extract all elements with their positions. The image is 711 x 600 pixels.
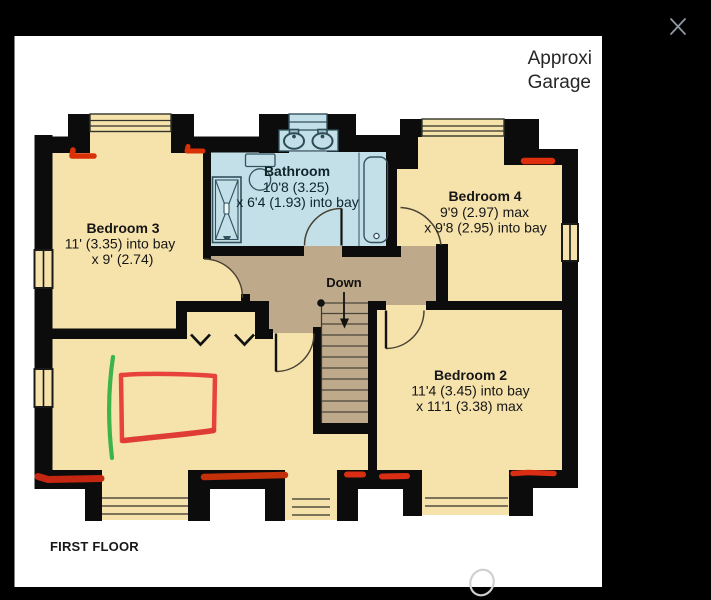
svg-text:Approxi: Approxi [528,48,592,69]
svg-text:x 11'1 (3.38) max: x 11'1 (3.38) max [416,398,523,414]
svg-text:11'4 (3.45) into bay: 11'4 (3.45) into bay [411,383,529,399]
svg-text:Down: Down [326,275,361,290]
svg-text:Garage: Garage [528,72,591,93]
svg-text:Bedroom 4: Bedroom 4 [448,188,521,204]
svg-text:Bathroom: Bathroom [264,163,330,179]
svg-text:x 9' (2.74): x 9' (2.74) [92,251,154,267]
svg-text:x 9'8 (2.95) into bay: x 9'8 (2.95) into bay [424,220,547,236]
svg-text:FIRST FLOOR: FIRST FLOOR [50,539,139,554]
svg-text:11' (3.35) into bay: 11' (3.35) into bay [65,236,176,252]
svg-text:Bedroom 3: Bedroom 3 [86,220,159,236]
svg-text:9'9 (2.97) max: 9'9 (2.97) max [440,204,529,220]
svg-text:10'8 (3.25): 10'8 (3.25) [263,179,330,195]
svg-text:Bedroom 2: Bedroom 2 [434,367,507,383]
svg-text:x 6'4 (1.93) into bay: x 6'4 (1.93) into bay [236,194,359,210]
